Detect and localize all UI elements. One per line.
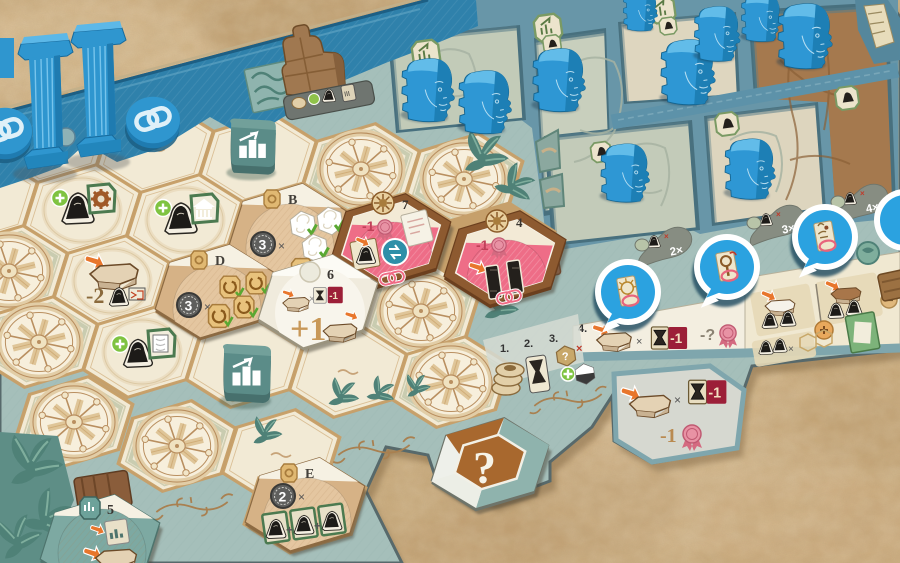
svg-text:-1: -1 xyxy=(670,331,683,346)
svg-text:+: + xyxy=(286,523,293,537)
svg-text:3: 3 xyxy=(185,298,193,314)
svg-text:-1: -1 xyxy=(660,425,677,447)
svg-text:×: × xyxy=(576,343,582,355)
svg-text:5: 5 xyxy=(107,503,114,518)
svg-text:×: × xyxy=(860,189,865,198)
svg-text:1.: 1. xyxy=(500,343,509,355)
svg-text:B: B xyxy=(288,193,297,208)
svg-text:E: E xyxy=(305,467,314,482)
svg-text:+: + xyxy=(314,519,321,533)
svg-text:6: 6 xyxy=(327,268,334,283)
svg-text:×: × xyxy=(788,344,794,355)
svg-text:×: × xyxy=(298,490,305,504)
svg-text:-1: -1 xyxy=(329,291,338,302)
svg-text:-1: -1 xyxy=(476,237,489,253)
svg-text:3: 3 xyxy=(259,237,267,253)
svg-text:×: × xyxy=(278,239,285,253)
svg-text:-?: -? xyxy=(700,327,715,344)
svg-text:3.: 3. xyxy=(549,333,558,345)
svg-text:+1: +1 xyxy=(290,311,326,348)
svg-text:×: × xyxy=(636,336,642,348)
svg-text:7: 7 xyxy=(402,197,409,212)
svg-text:?: ? xyxy=(473,442,496,493)
svg-text:-2: -2 xyxy=(86,283,104,308)
svg-text:×: × xyxy=(664,232,669,241)
svg-text:2.: 2. xyxy=(524,338,533,350)
svg-text:D: D xyxy=(215,254,225,269)
svg-text:×: × xyxy=(674,393,681,407)
svg-text:4: 4 xyxy=(516,215,523,230)
svg-text:2: 2 xyxy=(279,489,287,505)
svg-text:-1: -1 xyxy=(362,218,375,234)
svg-text:-1: -1 xyxy=(708,385,721,401)
svg-text:×: × xyxy=(776,210,781,219)
